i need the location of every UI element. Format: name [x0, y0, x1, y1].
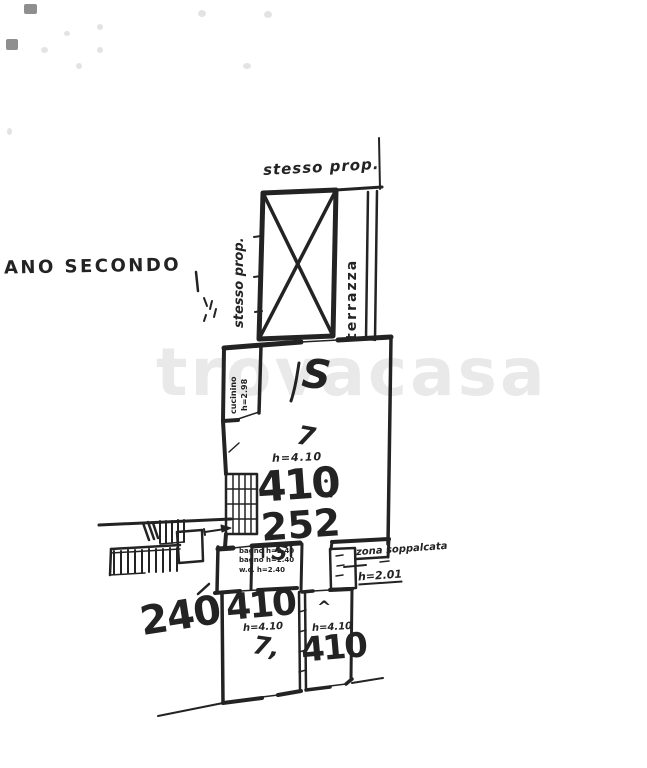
bath-note-3: w.c. h=2.40: [239, 567, 285, 574]
room-right-caret-mark: ^: [317, 600, 331, 617]
room-left-scribble: 7,: [251, 632, 281, 661]
radiator-hatch: [226, 474, 257, 534]
floorplan-scan: trovacasa: [0, 0, 647, 768]
cucinino-label: cucinino: [230, 350, 238, 414]
room-right-area-number: 410: [300, 628, 368, 668]
terrace-cross: [254, 190, 336, 339]
floor-label: ANO SECONDO: [4, 256, 181, 277]
stesso-prop-side-label: stesso prop.: [233, 226, 246, 328]
living-letter: S: [300, 354, 332, 396]
terrazza-label: terrazza: [345, 234, 359, 340]
living-dim-number: 252: [260, 503, 342, 546]
staircase: [99, 519, 231, 575]
room-left-area-number: 410: [225, 585, 297, 627]
dim-240-number: 240: [137, 590, 223, 642]
cucinino-height-label: h=2.98: [241, 353, 249, 411]
